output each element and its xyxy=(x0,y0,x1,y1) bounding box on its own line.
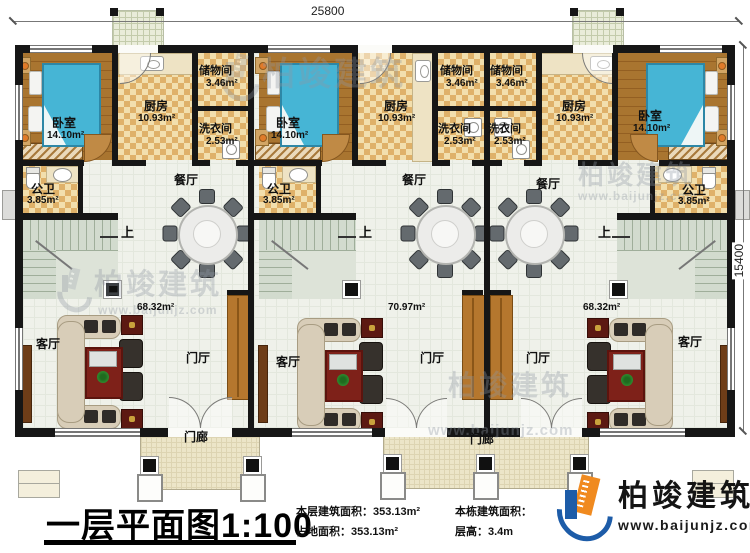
room-label-hall-left: 门厅 xyxy=(186,352,210,364)
wall-interior xyxy=(198,106,248,111)
stairs-up-label-left: 上 xyxy=(121,226,134,239)
wall-interior xyxy=(472,160,484,166)
chair xyxy=(163,226,178,242)
stoop-pier xyxy=(110,8,118,16)
wall-interior xyxy=(490,106,536,111)
window xyxy=(600,428,685,437)
wall-interior xyxy=(112,160,146,166)
wall-interior xyxy=(438,106,484,111)
watermark: www.baijunjz.com xyxy=(428,420,573,441)
watermark-name: 柏竣建筑 xyxy=(578,162,698,188)
room-label-dining-right: 餐厅 xyxy=(536,178,560,190)
window xyxy=(15,85,23,140)
room-label-hall-middle: 门厅 xyxy=(420,352,444,364)
staircase-middle xyxy=(259,220,356,299)
window xyxy=(268,45,330,53)
dining-table xyxy=(505,205,565,265)
chair xyxy=(526,263,542,278)
room-label-dining-left: 餐厅 xyxy=(174,174,198,186)
room-label-storage-left: 储物间 xyxy=(199,66,232,77)
tv-cabinet-left xyxy=(22,345,32,423)
rug xyxy=(607,350,645,402)
room-label-laundry-right: 洗衣间 xyxy=(488,124,521,135)
chair xyxy=(564,226,579,242)
sofa-set-right xyxy=(585,318,673,430)
room-area-laundry-right: 2.53m² xyxy=(494,137,526,147)
wall-interior xyxy=(438,160,450,166)
wall-interior xyxy=(236,160,248,166)
stairs-up-arrow xyxy=(338,236,356,238)
stat-total-area-label: 本栋建筑面积： xyxy=(455,503,532,519)
wall-interior xyxy=(524,160,536,166)
rug xyxy=(85,347,123,399)
stairs-up-label-middle: 上 xyxy=(359,226,372,239)
room-label-living-left: 客厅 xyxy=(36,338,60,350)
room-label-storage-right: 储物间 xyxy=(490,66,523,77)
room-area-storage-middle: 3.46m² xyxy=(446,79,478,89)
wall-bath xyxy=(316,166,321,213)
wall-interior xyxy=(253,160,322,166)
room-label-bath-left: 公卫 xyxy=(31,183,55,195)
room-label-bedroom-middle: 卧室 xyxy=(276,117,300,129)
chair xyxy=(490,226,505,242)
rug xyxy=(325,350,363,402)
stat-land-area: 占地面积：353.13m² xyxy=(296,523,398,539)
stoop-pier xyxy=(156,8,164,16)
pillows xyxy=(29,71,42,95)
watermark: 柏竣建筑 xyxy=(222,54,406,92)
room-label-laundry-left: 洗衣间 xyxy=(199,124,232,135)
side-cabinet xyxy=(361,318,383,338)
room-area-storage-right: 3.46m² xyxy=(496,79,528,89)
wall-bath xyxy=(78,166,83,213)
window xyxy=(727,328,735,390)
wall-interior xyxy=(198,160,210,166)
room-area-bath-middle: 3.85m² xyxy=(263,196,295,206)
stoop-pier xyxy=(616,8,624,16)
stair-flight xyxy=(259,250,292,299)
wall-interior xyxy=(112,45,118,166)
structural-column xyxy=(610,281,627,298)
stair-flight xyxy=(23,250,56,299)
watermark-name: 柏竣建筑 xyxy=(448,372,572,400)
bed-right xyxy=(648,55,730,149)
room-area-laundry-middle: 2.53m² xyxy=(444,137,476,147)
wall-interior xyxy=(490,160,502,166)
living-area-middle: 70.97m² xyxy=(388,303,425,313)
room-label-living-middle: 客厅 xyxy=(276,356,300,368)
stairs-up-arrow xyxy=(100,236,118,238)
title-underline xyxy=(44,540,296,545)
wall-interior xyxy=(352,160,386,166)
pillows xyxy=(705,71,718,95)
chair xyxy=(526,189,542,204)
window xyxy=(30,45,92,53)
dining-table xyxy=(178,205,238,265)
sink-left xyxy=(53,168,72,182)
room-label-kitchen-middle: 厨房 xyxy=(384,100,408,112)
side-cabinet xyxy=(121,409,143,429)
wall-interior xyxy=(536,45,542,166)
stairs-up-arrow xyxy=(612,236,630,238)
door-opening xyxy=(118,45,158,53)
room-label-bath-middle: 公卫 xyxy=(267,183,291,195)
room-area-bedroom-right: 14.10m² xyxy=(633,124,670,134)
stairs-up-label-right: 上 xyxy=(598,226,611,239)
watermark-name: 柏竣建筑 xyxy=(94,271,222,300)
corner-stoop-left xyxy=(18,470,60,498)
room-label-kitchen-left: 厨房 xyxy=(144,100,168,112)
room-label-hall-right: 门厅 xyxy=(526,352,550,364)
room-area-laundry-left: 2.53m² xyxy=(206,137,238,147)
plant xyxy=(621,374,633,386)
chair xyxy=(437,263,453,278)
floor-plan: 柏竣建筑 柏竣建筑 www.baijunjz.com 柏竣建筑 www.baij… xyxy=(0,0,750,553)
dining-table xyxy=(416,205,476,265)
stair-flight xyxy=(695,250,728,299)
tv-cabinet-middle xyxy=(258,345,268,423)
room-label-kitchen-right: 厨房 xyxy=(562,100,586,112)
living-area-left: 68.32m² xyxy=(137,303,174,313)
sofa-back xyxy=(57,321,85,423)
chair xyxy=(437,189,453,204)
room-area-kitchen-right: 10.93m² xyxy=(556,114,593,124)
chair xyxy=(199,189,215,204)
wall-party-1 xyxy=(248,45,254,428)
structural-column xyxy=(343,281,360,298)
sofa-back xyxy=(645,324,673,426)
staircase-right xyxy=(617,220,728,299)
plant xyxy=(337,374,349,386)
plant xyxy=(97,371,109,383)
chair xyxy=(401,226,416,242)
sink-middle xyxy=(289,168,308,182)
nightstand xyxy=(255,129,269,146)
room-label-dining-middle: 餐厅 xyxy=(402,174,426,186)
room-label-porch-left: 门廊 xyxy=(184,431,208,443)
porch-column xyxy=(384,455,401,472)
room-label-laundry-middle: 洗衣间 xyxy=(438,124,471,135)
stoop-pier xyxy=(570,8,578,16)
porch-column-base xyxy=(473,472,499,500)
wall-interior xyxy=(15,160,84,166)
entry-closet-left xyxy=(227,295,250,400)
window xyxy=(55,428,140,437)
stat-story-height: 层高：3.4m xyxy=(455,523,513,539)
porch-column xyxy=(571,455,588,472)
wall-interior xyxy=(612,45,618,166)
stat-floor-area: 本层建筑面积：353.13m² xyxy=(296,503,420,519)
sofa-set-left xyxy=(57,315,145,427)
brand-logo-name: 柏竣建筑 xyxy=(618,482,750,512)
side-cabinet xyxy=(587,318,609,338)
coffee-table xyxy=(613,354,641,370)
closet-cap xyxy=(490,290,511,295)
window xyxy=(15,328,23,390)
porch-column xyxy=(244,457,261,474)
room-area-bath-right: 3.85m² xyxy=(678,197,710,207)
dimension-line-right xyxy=(743,46,744,432)
room-label-bedroom-left: 卧室 xyxy=(52,117,76,129)
wall-stairs xyxy=(15,213,118,220)
room-label-bedroom-right: 卧室 xyxy=(638,110,662,122)
room-area-storage-left: 3.46m² xyxy=(206,79,238,89)
porch-column xyxy=(477,455,494,472)
brand-logo: 柏竣建筑 www.baijunjz.com xyxy=(558,476,750,538)
wall-stairs xyxy=(617,213,728,220)
room-area-bedroom-left: 14.10m² xyxy=(47,131,84,141)
closet-cap xyxy=(462,290,483,295)
door-opening xyxy=(573,45,613,53)
coffee-table xyxy=(89,351,117,367)
dimension-line-top xyxy=(12,21,740,22)
window xyxy=(660,45,722,53)
room-label-porch-center: 门廊 xyxy=(470,433,494,445)
window xyxy=(292,428,372,437)
kitchen-sink-middle xyxy=(415,60,431,82)
brand-glyph-icon xyxy=(58,268,88,302)
sofa-set-middle xyxy=(297,318,385,430)
room-label-storage-middle: 储物间 xyxy=(440,66,473,77)
brand-logo-url: www.baijunjz.com xyxy=(618,518,750,532)
window xyxy=(727,85,735,140)
porch-column-base xyxy=(380,472,406,500)
room-area-kitchen-left: 10.93m² xyxy=(138,114,175,124)
living-area-right: 68.32m² xyxy=(583,303,620,313)
room-area-bedroom-middle: 14.10m² xyxy=(271,131,308,141)
wall-stairs xyxy=(251,213,356,220)
dimension-right-value: 15400 xyxy=(732,242,746,279)
stair-flight xyxy=(617,220,728,251)
watermark-name: 柏竣建筑 xyxy=(262,57,406,90)
brand-logo-icon xyxy=(558,476,614,538)
watermark-url: www.baijunjz.com xyxy=(428,420,573,441)
door-opening xyxy=(358,45,392,53)
room-label-living-right: 客厅 xyxy=(678,336,702,348)
room-area-bath-left: 3.85m² xyxy=(27,196,59,206)
porch-column xyxy=(141,457,158,474)
sofa-back xyxy=(297,324,325,426)
watermark: 柏竣建筑 xyxy=(448,372,572,400)
closet-cap xyxy=(227,290,248,295)
room-area-kitchen-middle: 10.93m² xyxy=(378,114,415,124)
room-label-bath-right: 公卫 xyxy=(682,184,706,196)
coffee-table xyxy=(329,354,357,370)
dimension-top-value: 25800 xyxy=(308,4,347,18)
